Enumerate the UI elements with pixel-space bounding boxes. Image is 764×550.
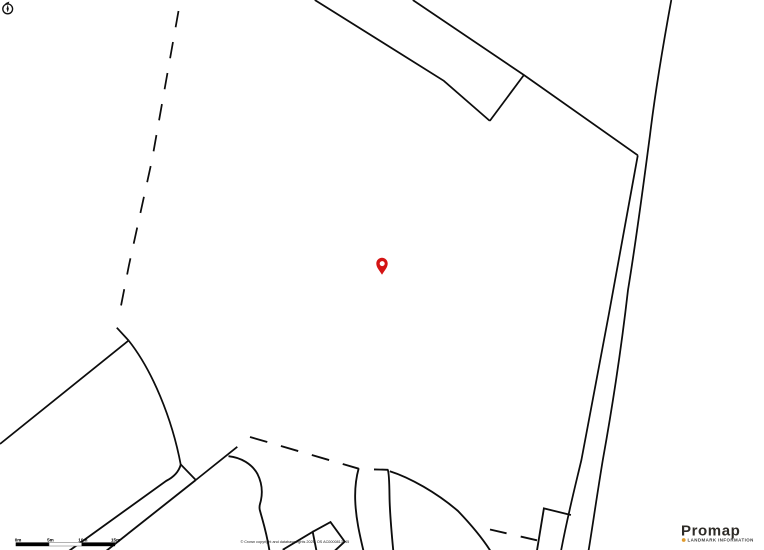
- svg-text:© Crown copyright and database: © Crown copyright and database rights 20…: [241, 540, 350, 544]
- svg-text:5m: 5m: [47, 538, 54, 543]
- svg-text:0m: 0m: [15, 538, 22, 543]
- svg-text:LANDMARK INFORMATION: LANDMARK INFORMATION: [688, 538, 754, 543]
- svg-text:10m: 10m: [78, 538, 87, 543]
- svg-text:15m: 15m: [111, 538, 120, 543]
